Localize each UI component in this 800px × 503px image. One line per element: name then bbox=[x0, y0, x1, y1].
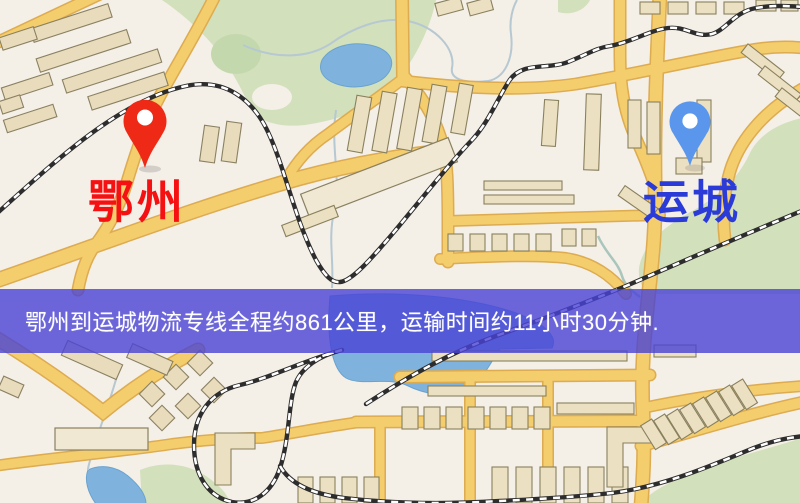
park-clearing bbox=[252, 84, 292, 110]
pin-shadow bbox=[685, 165, 705, 172]
map-viewport: 鄂州 运城 鄂州到运城物流专线全程约861公里，运输时间约11小时30分钟. bbox=[0, 0, 800, 503]
origin-pin-hole bbox=[137, 110, 153, 126]
destination-label: 运城 bbox=[643, 176, 741, 228]
lake bbox=[321, 44, 392, 87]
route-info-banner: 鄂州到运城物流专线全程约861公里，运输时间约11小时30分钟. bbox=[0, 289, 800, 353]
destination-pin-hole bbox=[682, 113, 697, 128]
park-grove bbox=[211, 34, 261, 74]
pin-shadow bbox=[139, 166, 161, 173]
map-canvas: 鄂州 运城 bbox=[0, 0, 800, 503]
route-info-text: 鄂州到运城物流专线全程约861公里，运输时间约11小时30分钟. bbox=[0, 305, 659, 337]
origin-label: 鄂州 bbox=[88, 176, 186, 228]
